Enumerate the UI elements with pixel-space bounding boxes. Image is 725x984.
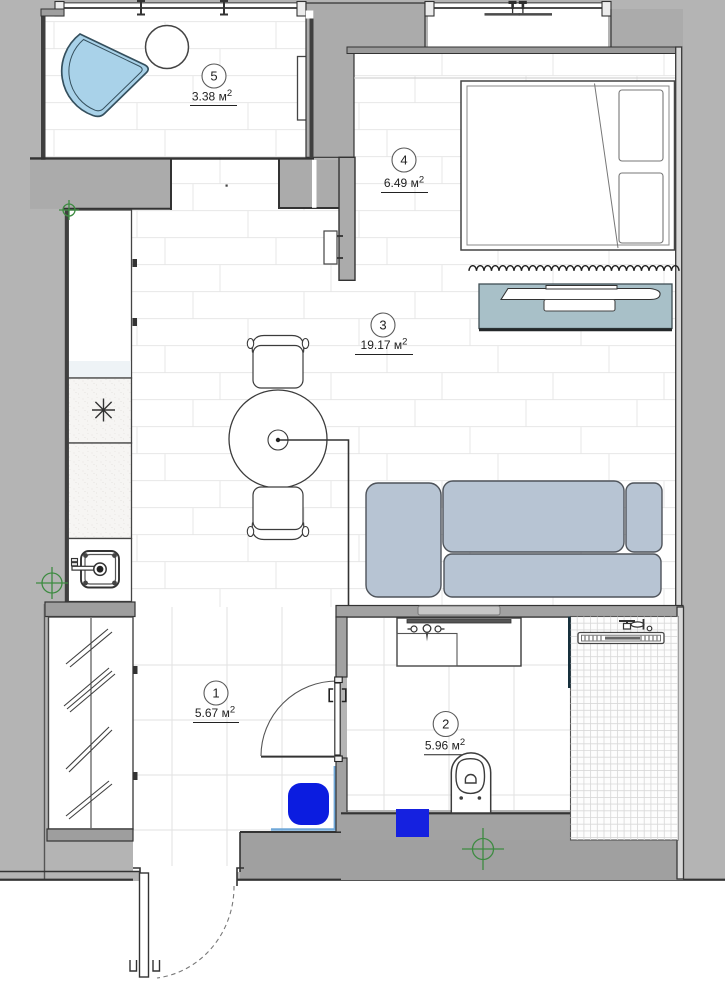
svg-text:19.17 м2: 19.17 м2	[361, 337, 408, 353]
svg-text:5: 5	[210, 69, 217, 84]
svg-text:5.96 м2: 5.96 м2	[425, 737, 465, 753]
svg-text:5.67 м2: 5.67 м2	[195, 705, 235, 721]
svg-text:1: 1	[212, 686, 219, 701]
svg-text:4: 4	[400, 153, 407, 168]
svg-text:6.49 м2: 6.49 м2	[384, 175, 424, 191]
svg-text:3: 3	[379, 318, 386, 333]
svg-text:2: 2	[442, 717, 449, 732]
svg-text:3.38 м2: 3.38 м2	[192, 88, 232, 104]
